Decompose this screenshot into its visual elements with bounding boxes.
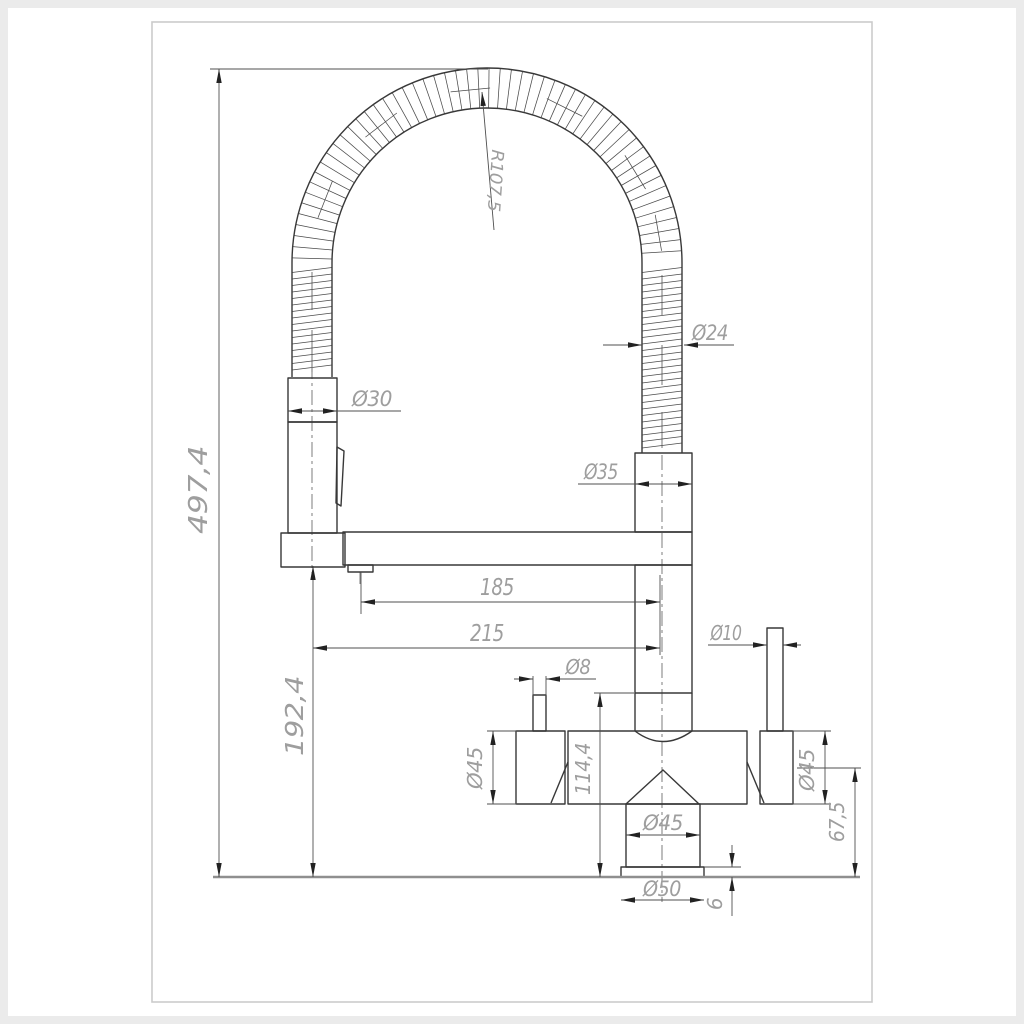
dim-outlet-height-label: 192,4 xyxy=(280,676,309,756)
technical-drawing: 497,4 192,4 215 185 R107,5 Ø24 Ø30 Ø35 Ø… xyxy=(0,0,1024,1024)
dim-reach-outlet-label: 185 xyxy=(480,575,514,601)
dim-base-flange-thickness-label: 6 xyxy=(703,898,727,910)
dim-base-shaft-diameter-label: Ø45 xyxy=(642,811,683,835)
dim-spring-radius-label: R107,5 xyxy=(483,149,507,212)
dimension-lines xyxy=(210,69,861,916)
spout-arm xyxy=(343,532,692,572)
spray-head xyxy=(281,378,345,567)
dim-hose-diameter-label: Ø24 xyxy=(691,321,728,345)
dim-body-left-diameter-label: Ø45 xyxy=(463,747,487,790)
dim-overall-height-label: 497,4 xyxy=(184,446,214,534)
page-background: 497,4 192,4 215 185 R107,5 Ø24 Ø30 Ø35 Ø… xyxy=(0,0,1024,1024)
dim-body-axis-height-label: 67,5 xyxy=(825,802,849,842)
riser-pipe xyxy=(635,453,692,742)
dim-body-right-diameter-label: Ø45 xyxy=(795,749,819,792)
dim-connector-diameter-label: Ø35 xyxy=(583,460,618,484)
dim-left-lever-diameter-label: Ø8 xyxy=(565,655,591,679)
dim-base-flange-diameter-label: Ø50 xyxy=(642,877,681,901)
spring-hose-hatch xyxy=(292,68,682,448)
dim-reach-total-label: 215 xyxy=(470,621,504,647)
right-lever xyxy=(767,628,783,731)
dim-right-lever-diameter-label: Ø10 xyxy=(710,621,742,645)
dim-sprayhead-diameter-label: Ø30 xyxy=(351,387,392,411)
faucet-outline xyxy=(281,68,793,877)
sheet-frame xyxy=(152,22,872,1002)
mixer-body xyxy=(516,731,793,804)
left-lever xyxy=(533,695,546,731)
dim-inlet-top-height-label: 114,4 xyxy=(571,743,595,795)
dimension-arrowheads xyxy=(216,69,857,903)
